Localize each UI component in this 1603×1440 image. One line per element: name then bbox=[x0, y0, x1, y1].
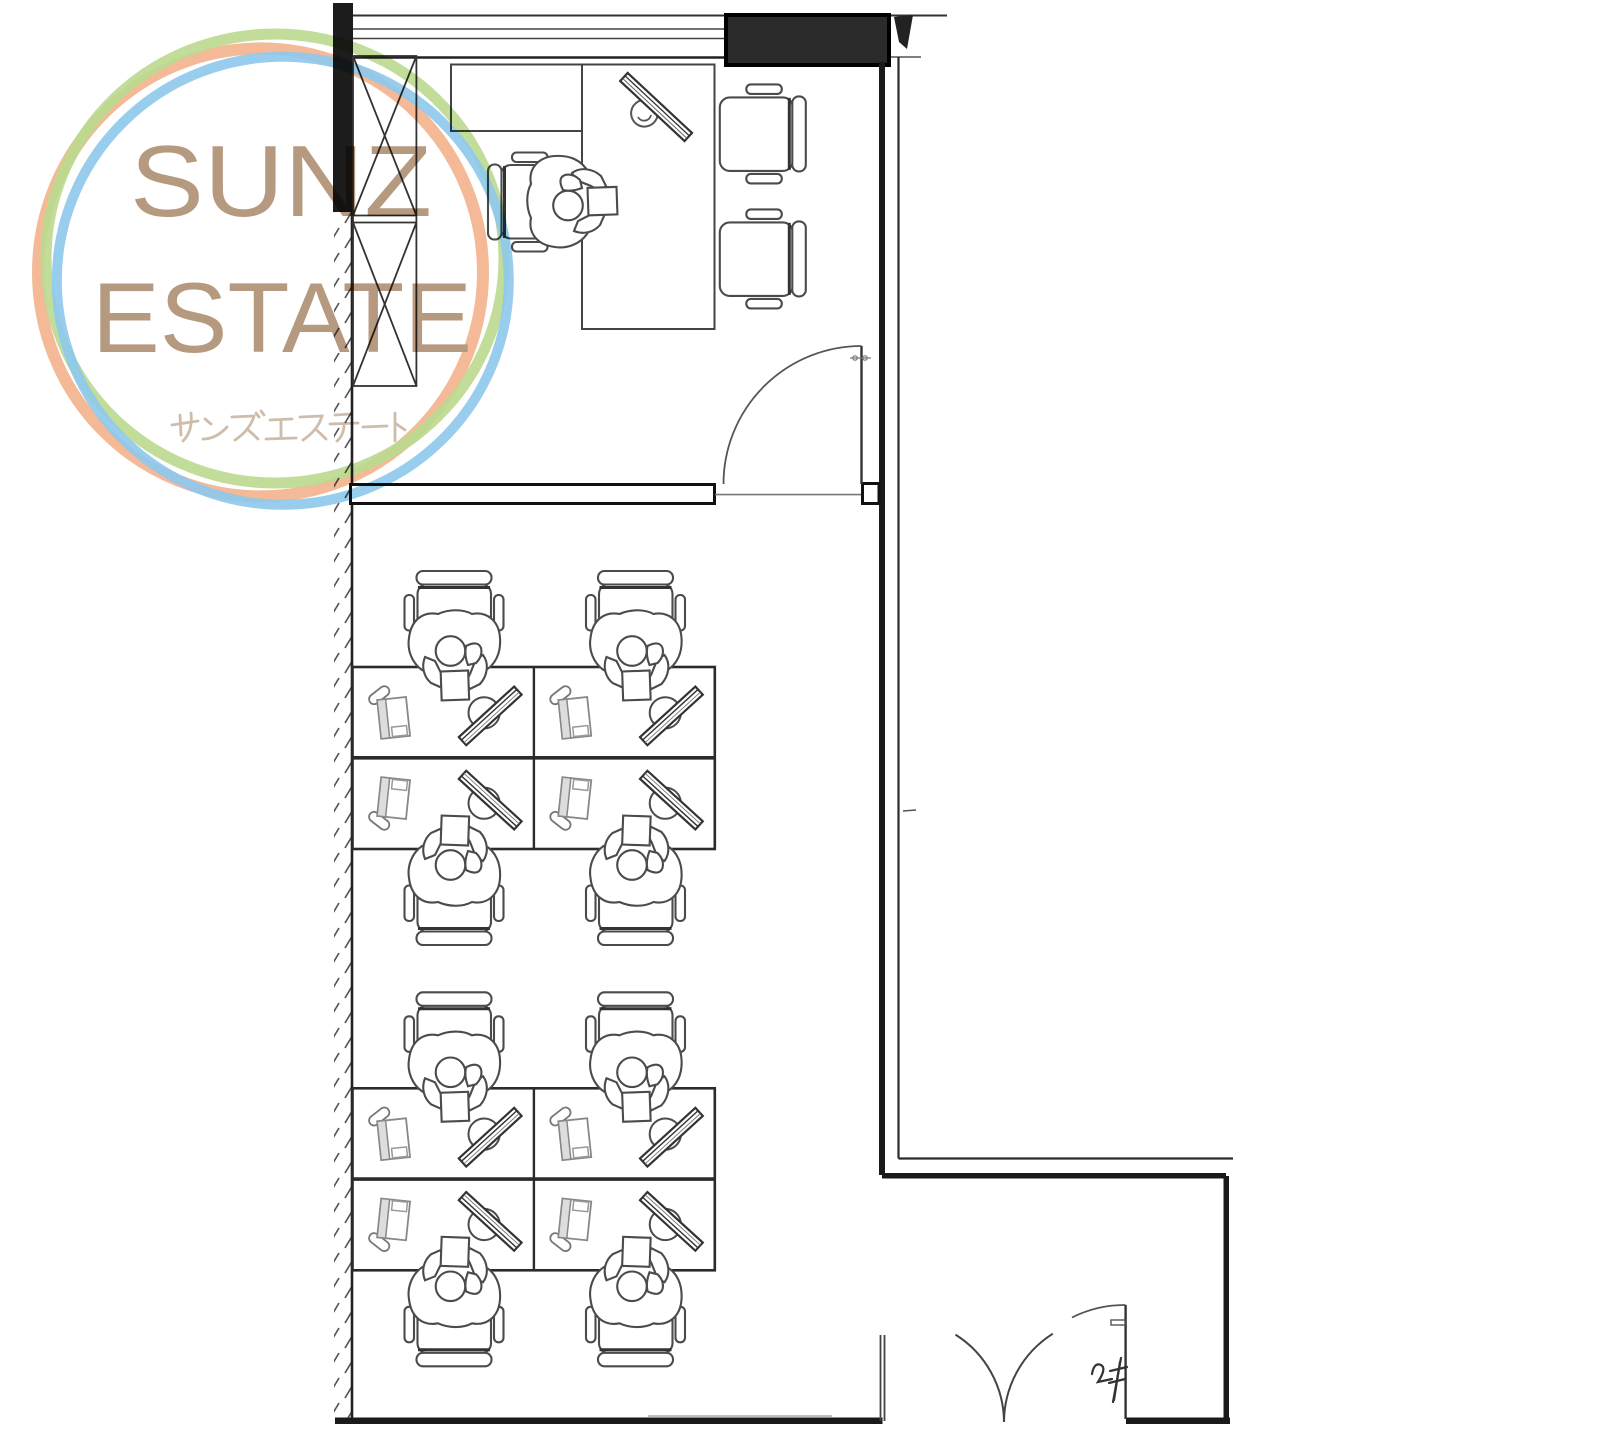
svg-text:SUNZ: SUNZ bbox=[130, 126, 432, 238]
svg-text:ESTATE: ESTATE bbox=[92, 262, 472, 373]
